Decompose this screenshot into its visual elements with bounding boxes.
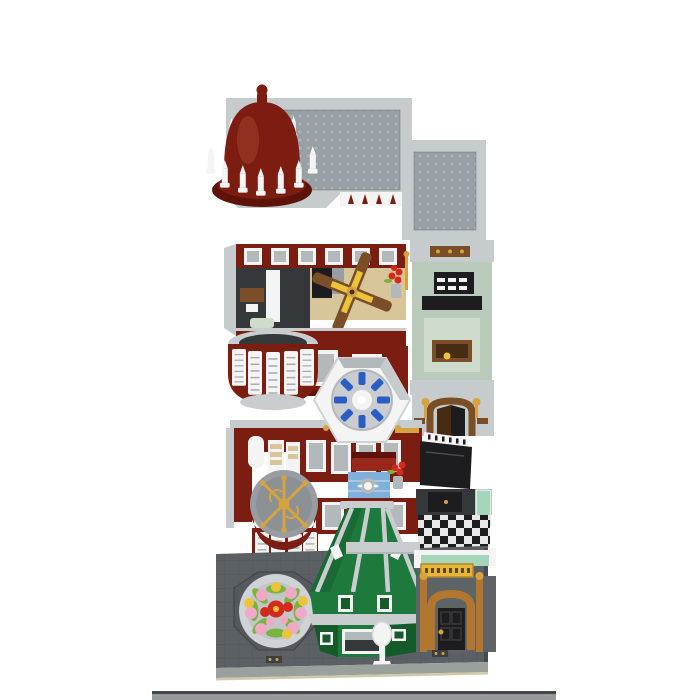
product-image [0, 0, 700, 700]
red-sofa [352, 452, 396, 471]
side-wall [226, 428, 234, 528]
roof-terrace-plate [414, 152, 476, 230]
shutter-window [300, 349, 314, 386]
checkered-floor [418, 515, 490, 548]
grand-piano [420, 432, 472, 489]
chair [246, 304, 258, 312]
shutter-window [232, 349, 246, 386]
couch [250, 318, 274, 328]
pavement-plaque [266, 656, 282, 663]
pavement-plaque [432, 650, 448, 657]
dome-finial [257, 85, 268, 106]
shutter-window [248, 351, 262, 395]
exploded-building-render [0, 0, 700, 700]
side-wall [224, 244, 236, 336]
plunge-pool [348, 472, 390, 500]
desk [240, 288, 264, 302]
restaurant-arch-doorway [412, 395, 494, 436]
interior-column [266, 270, 280, 322]
next-image-edge [152, 691, 556, 700]
kitchen-hutch [434, 272, 474, 294]
shutter-window [284, 351, 298, 395]
kiosk-band [310, 592, 426, 614]
shutter-window [266, 352, 280, 398]
kitchen-counter [422, 296, 482, 310]
green-room-wing [410, 240, 494, 436]
bench [477, 418, 488, 424]
entrance-door [438, 608, 465, 650]
entrance-sign [421, 564, 473, 577]
minifigure-head [444, 353, 451, 360]
gold-emblem-turret-top [250, 470, 318, 550]
hotel-entrance [414, 548, 496, 652]
kiosk-cornice [308, 614, 428, 625]
roof-ledge [340, 192, 402, 206]
boiler [248, 436, 264, 468]
flower-bed [239, 574, 313, 648]
